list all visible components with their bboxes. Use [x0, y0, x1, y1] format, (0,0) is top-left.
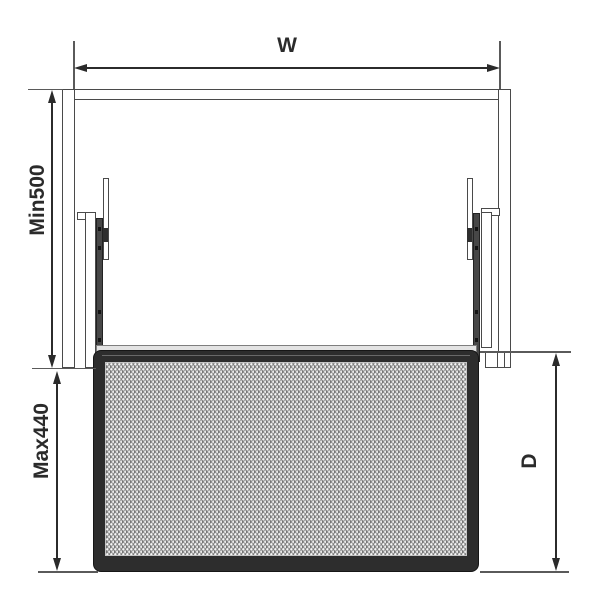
- right-slide-bar: [467, 178, 473, 260]
- width-arrow-right-icon: [487, 64, 500, 72]
- depth-extension-line-bottom: [480, 571, 569, 572]
- technical-drawing-canvas: W Min500 Max440 D: [0, 0, 600, 616]
- cabinet-top-panel: [62, 89, 511, 100]
- right-rail-hole: [475, 227, 478, 231]
- right-bracket-foot-line: [497, 351, 498, 368]
- basket-frame-highlight: [102, 355, 470, 356]
- right-rail-hole: [475, 246, 478, 250]
- basket-mesh-panel: [105, 362, 467, 556]
- right-slide-connector: [467, 228, 472, 242]
- left-rail-hole: [98, 310, 101, 314]
- max440-extension-line-bottom: [38, 571, 98, 572]
- right-rail-hole: [475, 338, 478, 342]
- cabinet-left-side-panel: [62, 89, 75, 368]
- min500-extension-line-bottom: [32, 368, 96, 369]
- min500-arrow-up-icon: [48, 90, 56, 103]
- right-rail-hole: [475, 310, 478, 314]
- min500-arrow-down-icon: [48, 355, 56, 368]
- min500-dimension-label: Min500: [26, 164, 50, 235]
- min500-dimension-line: [51, 100, 53, 356]
- min500-extension-line-top: [28, 89, 63, 90]
- right-bracket-foot-line: [504, 351, 505, 368]
- width-dimension-line: [85, 67, 489, 69]
- depth-arrow-up-icon: [552, 353, 560, 366]
- depth-dimension-label: D: [518, 453, 542, 468]
- left-slide-bar: [103, 178, 109, 260]
- width-arrow-left-icon: [74, 64, 87, 72]
- depth-dimension-line: [555, 365, 557, 558]
- left-rail-hole: [98, 338, 101, 342]
- width-dimension-label: W: [76, 34, 498, 58]
- left-slide-connector: [103, 228, 108, 242]
- right-bracket-back-plate: [481, 212, 492, 348]
- max440-dimension-line: [56, 382, 58, 558]
- left-bracket-back-plate: [85, 212, 96, 368]
- max440-arrow-down-icon: [53, 558, 61, 571]
- cabinet-right-side-panel: [498, 89, 511, 368]
- depth-arrow-down-icon: [552, 558, 560, 571]
- max440-arrow-up-icon: [53, 371, 61, 384]
- left-rail-hole: [98, 227, 101, 231]
- right-bracket-foot: [485, 351, 511, 368]
- left-rail-hole: [98, 246, 101, 250]
- max440-dimension-label: Max440: [30, 403, 54, 479]
